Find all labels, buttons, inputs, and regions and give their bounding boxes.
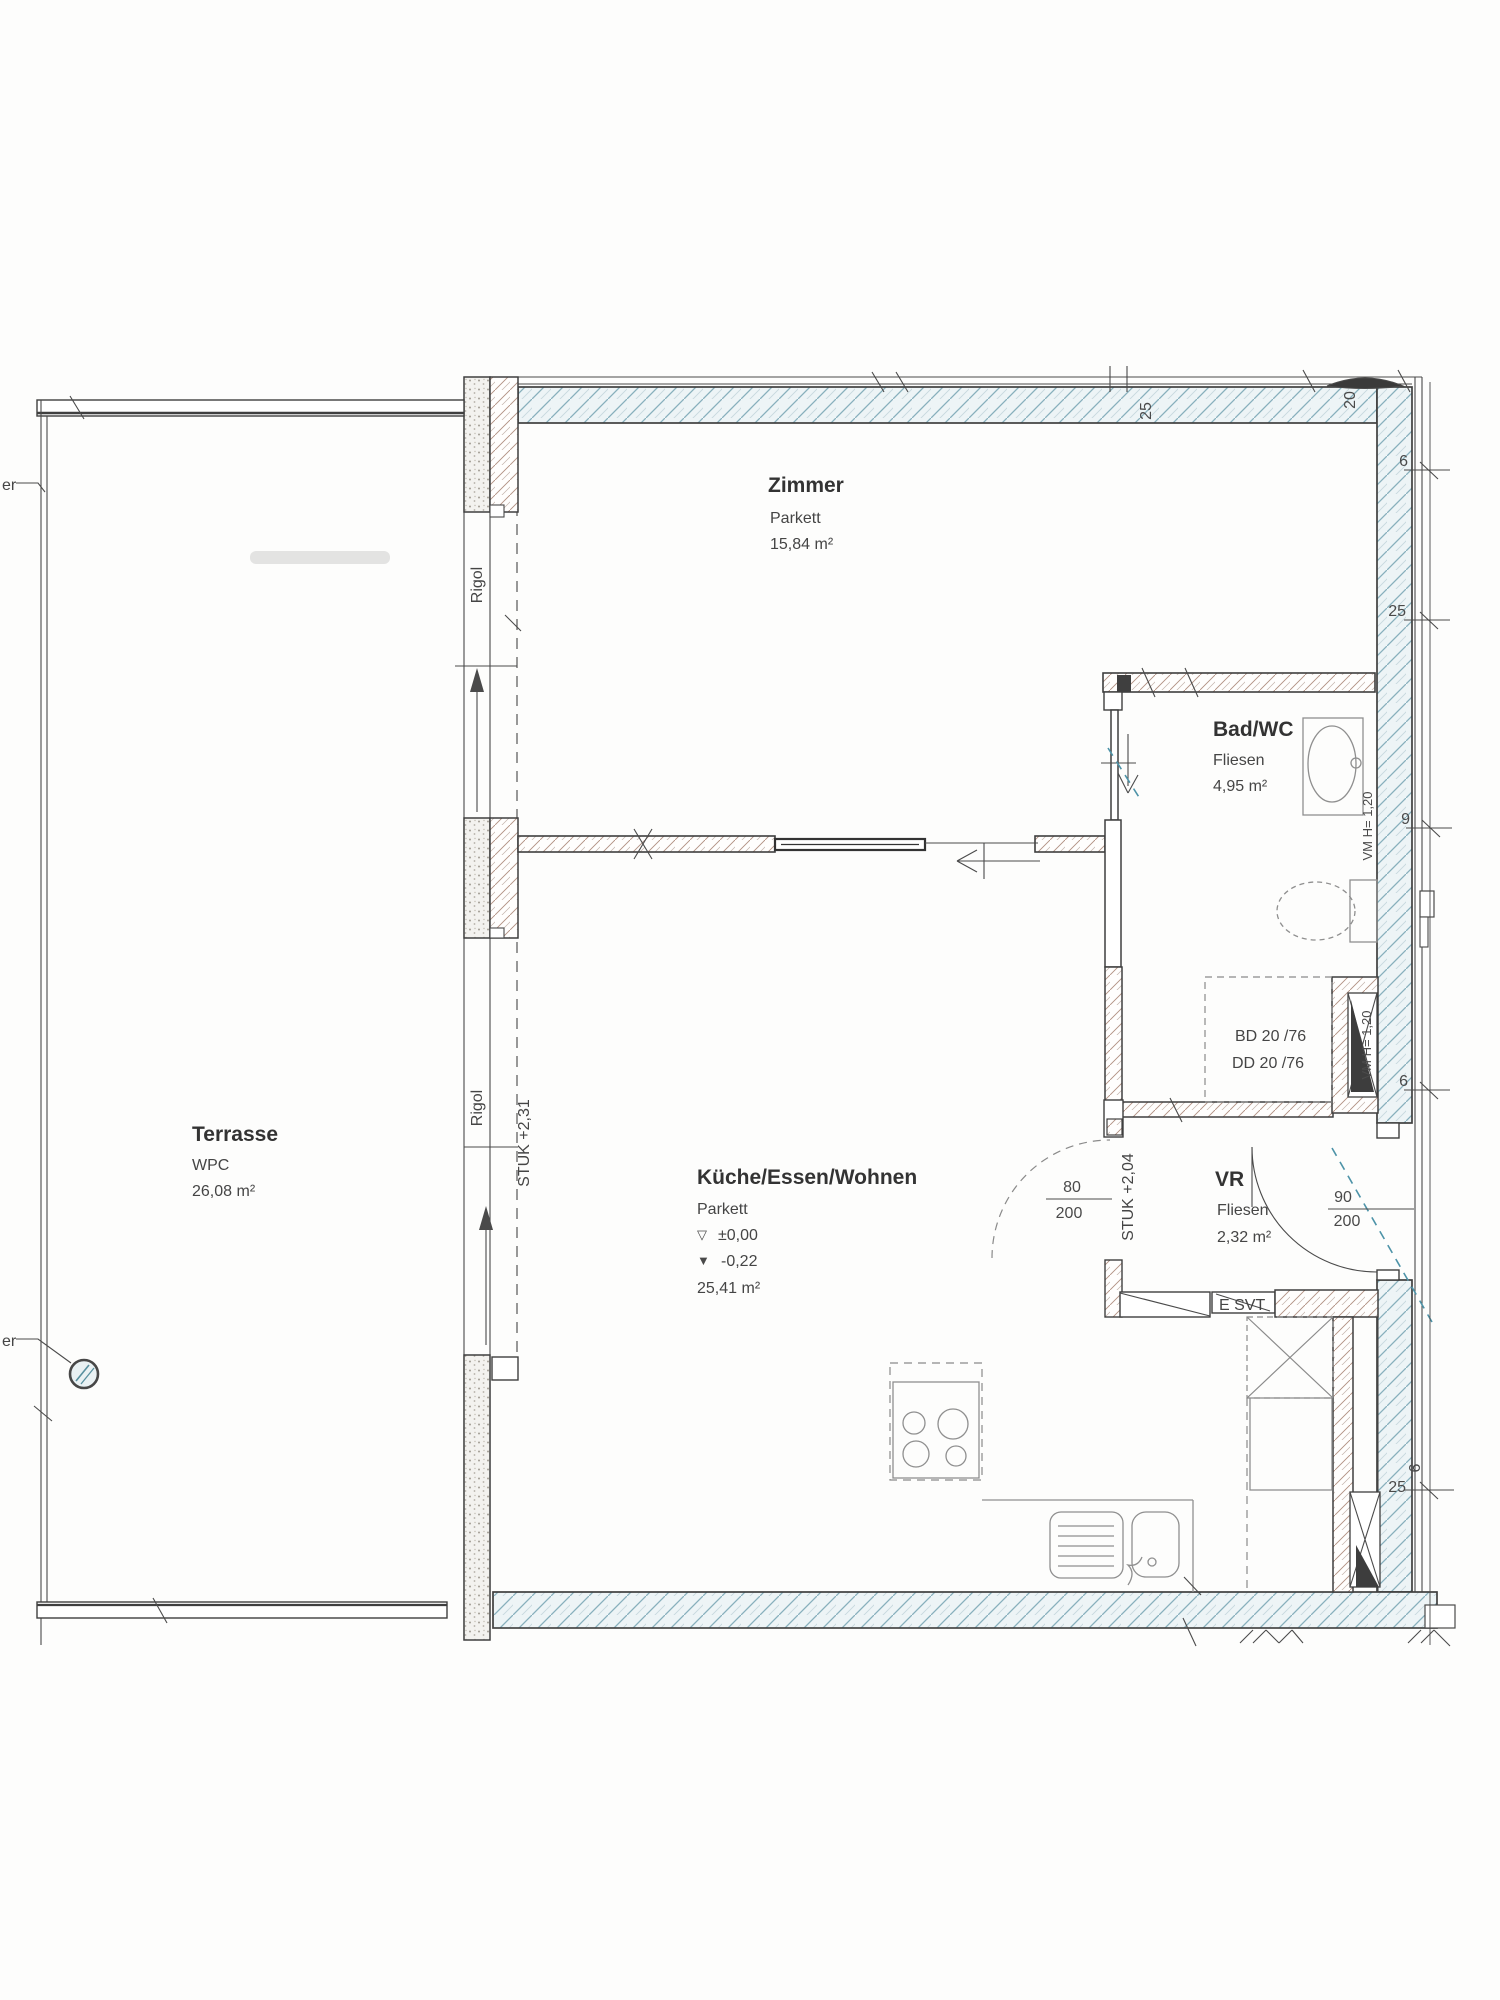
vm-niche-label: VM H= 1,20 [1360,791,1375,860]
kueche-level-bottom: -0,22 [721,1253,758,1270]
facade-pier-2 [464,818,490,938]
facade-pier-3 [464,1355,490,1640]
edge-label-leader-lower [16,1339,71,1363]
room-label-terrasse: Terrasse [192,1123,278,1146]
vr-floor: Fliesen [1217,1202,1269,1219]
rigol-slope-arrow-lower [479,1206,493,1345]
kueche-east-walls [1333,1317,1380,1592]
exterior-wall-bottom [493,1592,1455,1646]
door80-width: 80 [1063,1179,1081,1196]
zimmer-floor: Parkett [770,510,821,527]
kueche-tall-unit [1247,1317,1333,1592]
vr-area: 2,32 m² [1217,1229,1272,1246]
badwc-toilet [1277,880,1377,942]
room-label-badwc: Bad/WC [1213,718,1294,741]
dim-right-6a: 6 [1399,453,1408,470]
badwc-door-hinge [1117,675,1131,692]
exterior-wall-right [1377,377,1434,1628]
e-svt-label: E SVT [1219,1297,1265,1314]
terrasse-area: 26,08 m² [192,1183,256,1200]
entrance-door-jamb-top [1377,1123,1399,1138]
edge-label-upper: er [2,477,17,494]
zimmer-area: 15,84 m² [770,536,834,553]
terrace-railing [34,396,464,1645]
kueche-area: 25,41 m² [697,1280,761,1297]
rigol-label-lower: Rigol [469,1090,486,1126]
badwc-door-leaf [1111,710,1118,820]
rigol-label-upper: Rigol [469,567,486,603]
dim-right-25b: 25 [1388,1479,1406,1496]
floor-plan-drawing: Zimmer Parkett 15,84 m² Bad/WC Fliesen 4… [0,0,1500,2000]
facade-pier-1 [464,377,490,512]
kitchen-sink [1050,1512,1179,1585]
entrance-door-jamb-bottom [1377,1270,1399,1280]
lintel-lens-symbol [1327,378,1403,389]
terrasse-floor: WPC [192,1157,229,1174]
kueche-floor: Parkett [697,1201,748,1218]
dim-right-6c: 6 [1407,1463,1424,1472]
scan-smudge [250,551,390,564]
kueche-level-top: ±0,00 [718,1227,758,1244]
terrace-drain-symbol [70,1360,98,1388]
door90-height: 200 [1334,1213,1361,1230]
kitchen-stove [890,1363,982,1480]
room-label-kueche: Küche/Essen/Wohnen [697,1166,917,1189]
wall-zimmer-kueche [518,829,1105,879]
badwc-area: 4,95 m² [1213,778,1268,795]
facade-west [455,377,521,1640]
door90-width: 90 [1334,1189,1352,1206]
floor-plan-page: Zimmer Parkett 15,84 m² Bad/WC Fliesen 4… [0,0,1500,2000]
kitchen-counter [982,1500,1201,1595]
door80-height: 200 [1056,1205,1083,1222]
dim-top-20: 20 [1342,391,1359,409]
level-symbol-top: ▽ [697,1227,707,1242]
edge-label-lower: er [2,1333,17,1350]
dim-right-6b: 6 [1399,1073,1408,1090]
badwc-washbasin [1303,718,1363,815]
room-label-vr: VR [1215,1168,1244,1191]
tub-label-bd: BD 20 /76 [1235,1028,1306,1045]
dim-right-9: 9 [1401,811,1410,828]
dim-right-25a: 25 [1388,603,1406,620]
badwc-floor: Fliesen [1213,752,1265,769]
stuk-facade-label: STUK +2,31 [516,1099,533,1187]
rigol-slope-arrow-upper [470,668,484,812]
wall-badwc-north [1103,668,1375,697]
wall-niche-bump [1420,891,1434,917]
badwc-entry-arrow [1101,734,1142,802]
tub-label-dd: DD 20 /76 [1232,1055,1304,1072]
vm-shaft-label: VM H= 1,20 [1359,1010,1374,1079]
stuk-vr-label: STUK +2,04 [1120,1153,1137,1241]
wall-badwc-west [1101,675,1142,1102]
sliding-door-arrow [957,843,1040,879]
exterior-wall-top [518,377,1422,423]
room-label-zimmer: Zimmer [768,474,844,497]
dim-top-25: 25 [1138,402,1155,420]
level-symbol-bottom: ▼ [697,1253,710,1268]
